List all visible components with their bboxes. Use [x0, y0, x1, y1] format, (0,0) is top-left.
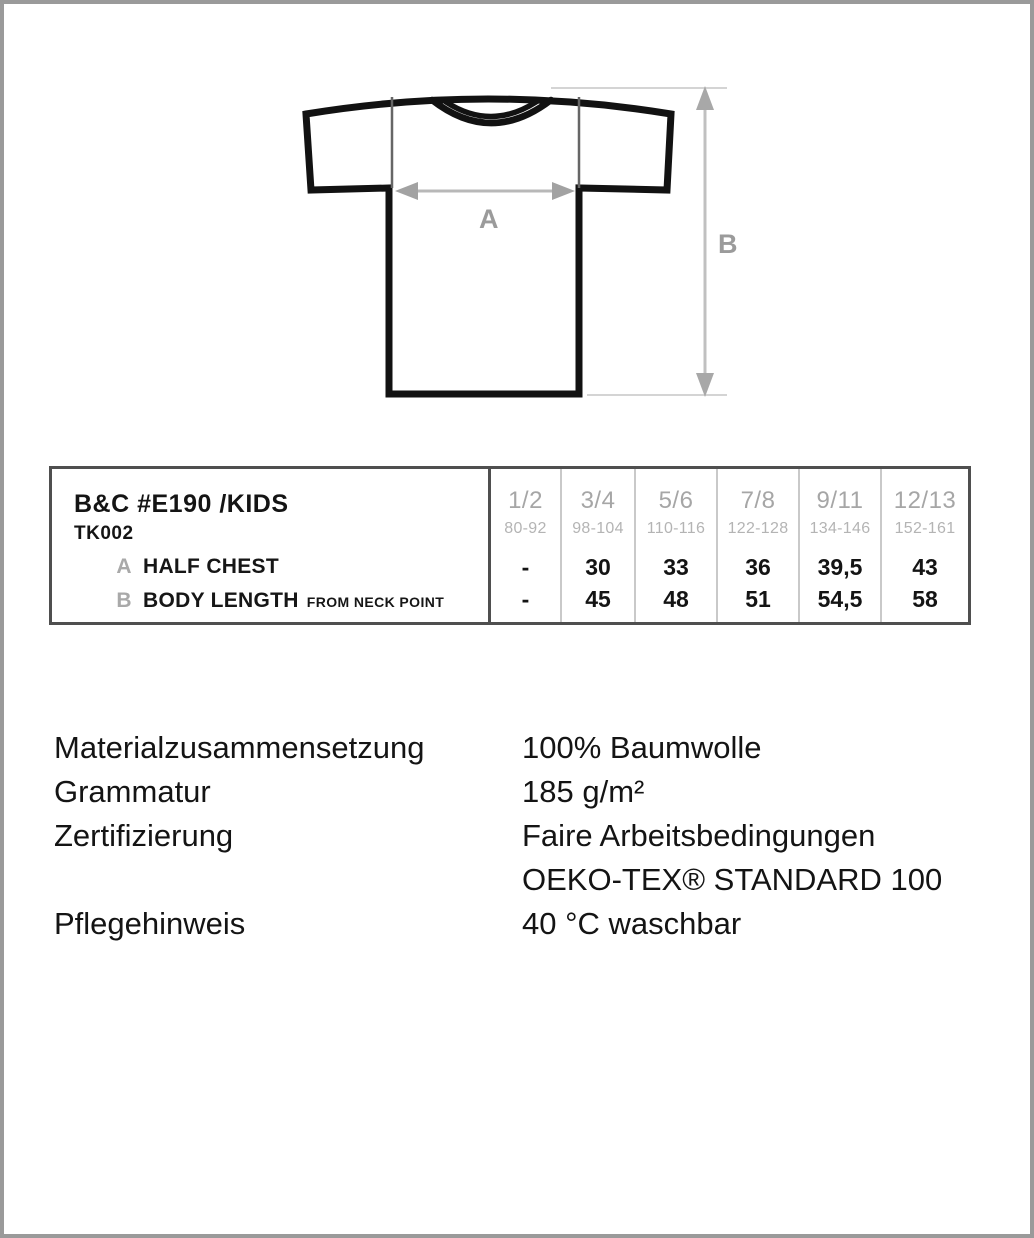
half-chest-value: 33: [636, 539, 716, 581]
table-row-body-length: BBODY LENGTHFROM NECK POINT: [52, 583, 488, 617]
info-label: [54, 858, 522, 902]
body-length-value: 48: [636, 581, 716, 613]
size-column-12-13: 12/13 152-161 43 58: [880, 469, 968, 622]
width-arrow-label: A: [479, 204, 499, 234]
size-label: 7/8: [718, 469, 798, 514]
info-label: Grammatur: [54, 770, 522, 814]
row-label-suffix: FROM NECK POINT: [307, 594, 444, 610]
info-value: Faire Arbeitsbedingungen: [522, 814, 998, 858]
body-length-value: 51: [718, 581, 798, 613]
info-value: 100% Baumwolle: [522, 726, 998, 770]
row-key-a: A: [112, 553, 136, 581]
info-value: OEKO-TEX® STANDARD 100: [522, 858, 998, 902]
info-row-material: Materialzusammensetzung 100% Baumwolle: [54, 726, 998, 770]
age-range: 98-104: [562, 514, 634, 539]
size-label: 12/13: [882, 469, 968, 514]
info-value: 40 °C waschbar: [522, 902, 998, 946]
row-label-half-chest: HALF CHEST: [143, 555, 279, 578]
body-length-value: 54,5: [800, 581, 880, 613]
size-diagram: A B: [289, 64, 749, 409]
body-length-value: 58: [882, 581, 968, 613]
size-label: 5/6: [636, 469, 716, 514]
product-title: B&C #E190 /KIDS: [52, 469, 488, 519]
size-label: 9/11: [800, 469, 880, 514]
info-label: Zertifizierung: [54, 814, 522, 858]
length-arrow-label: B: [718, 229, 738, 259]
half-chest-value: 39,5: [800, 539, 880, 581]
size-column-3-4: 3/4 98-104 30 45: [560, 469, 634, 622]
size-column-7-8: 7/8 122-128 36 51: [716, 469, 798, 622]
size-label: 1/2: [491, 469, 560, 514]
half-chest-value: 43: [882, 539, 968, 581]
age-range: 152-161: [882, 514, 968, 539]
body-length-value: 45: [562, 581, 634, 613]
info-label: Pflegehinweis: [54, 902, 522, 946]
info-row-grammage: Grammatur 185 g/m²: [54, 770, 998, 814]
info-row-certification: Zertifizierung Faire Arbeitsbedingungen: [54, 814, 998, 858]
table-row-half-chest: AHALF CHEST: [52, 545, 488, 583]
age-range: 110-116: [636, 514, 716, 539]
size-column-5-6: 5/6 110-116 33 48: [634, 469, 716, 622]
half-chest-value: 30: [562, 539, 634, 581]
size-label: 3/4: [562, 469, 634, 514]
half-chest-value: 36: [718, 539, 798, 581]
size-column-9-11: 9/11 134-146 39,5 54,5: [798, 469, 880, 622]
length-arrow-b-icon: [696, 86, 714, 397]
half-chest-value: -: [491, 539, 560, 581]
size-column-1-2: 1/2 80-92 - -: [488, 469, 560, 622]
spec-sheet-page: A B B&C #E190 /KIDS TK002 AHALF CHEST BB…: [0, 0, 1034, 1238]
product-code: TK002: [52, 519, 488, 545]
size-table: B&C #E190 /KIDS TK002 AHALF CHEST BBODY …: [49, 466, 971, 625]
row-key-b: B: [112, 587, 136, 615]
row-label-body-length: BODY LENGTH: [143, 589, 299, 612]
info-row-care: Pflegehinweis 40 °C waschbar: [54, 902, 998, 946]
info-value: 185 g/m²: [522, 770, 998, 814]
age-range: 80-92: [491, 514, 560, 539]
age-range: 122-128: [718, 514, 798, 539]
tshirt-outline-icon: [306, 99, 671, 394]
material-info: Materialzusammensetzung 100% Baumwolle G…: [54, 726, 998, 946]
info-row-certification-2: OEKO-TEX® STANDARD 100: [54, 858, 998, 902]
body-length-value: -: [491, 581, 560, 613]
age-range: 134-146: [800, 514, 880, 539]
size-table-label-column: B&C #E190 /KIDS TK002 AHALF CHEST BBODY …: [52, 469, 488, 622]
info-label: Materialzusammensetzung: [54, 726, 522, 770]
